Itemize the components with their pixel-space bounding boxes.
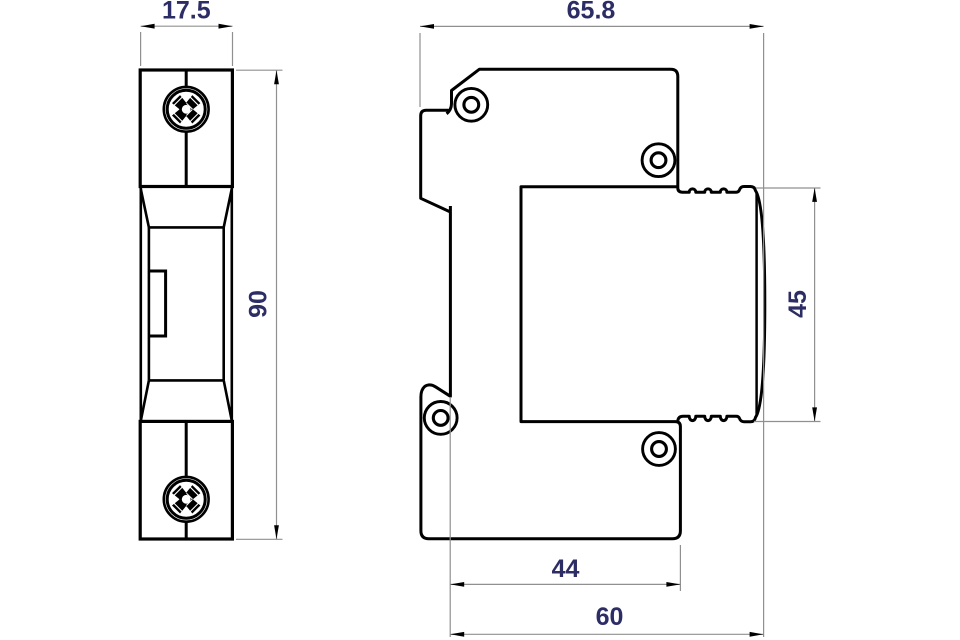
svg-text:90: 90 [245, 290, 273, 318]
svg-text:45: 45 [784, 290, 812, 318]
svg-text:44: 44 [552, 555, 580, 583]
svg-text:60: 60 [596, 603, 624, 631]
svg-text:17.5: 17.5 [162, 0, 211, 24]
svg-text:65.8: 65.8 [567, 0, 616, 24]
